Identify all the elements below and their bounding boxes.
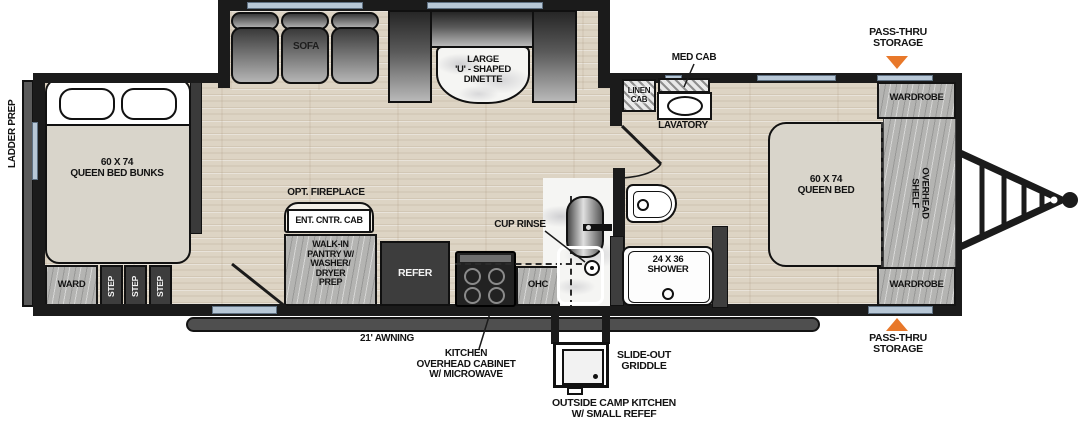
hitch-pin-hole: [1051, 197, 1058, 204]
wardrobe-bottom-label: WARDROBE: [877, 280, 956, 290]
step-label: STEP: [156, 275, 165, 296]
lavatory-sink: [667, 96, 703, 116]
sofa-label: SOFA: [287, 42, 325, 53]
shower-label: 24 X 36 SHOWER: [622, 255, 714, 275]
opt-fireplace-label: OPT. FIREPLACE: [276, 188, 376, 199]
pass-thru-top-label: PASS-THRU STORAGE: [856, 27, 940, 49]
ent-cntr-cab: ENT. CNTR. CAB: [287, 209, 371, 233]
entry-door-sill: [212, 306, 277, 314]
walk-in-pantry-label: WALK-IN PANTRY W/ WASHER/ DRYER PREP: [284, 240, 377, 288]
linen-cab-label: LINEN CAB: [628, 87, 651, 104]
pass-thru-door-bottom: [868, 306, 933, 314]
med-cab-label: MED CAB: [666, 53, 722, 64]
griddle-rail-left: [551, 312, 559, 344]
dinette-bench-right: [532, 10, 577, 103]
sofa-seat: [231, 27, 279, 84]
dinette-label: LARGE 'U' - SHAPED DINETTE: [436, 55, 530, 85]
bunk-bed-label: 60 X 74 QUEEN BED BUNKS: [52, 158, 182, 179]
cup-rinse-drain: [590, 266, 594, 270]
ent-cntr-cab-label: ENT. CNTR. CAB: [295, 216, 362, 226]
griddle-tab: [567, 387, 583, 395]
hitch-tongue: [958, 140, 1082, 260]
queen-bed-label: 60 X 74 QUEEN BED: [794, 175, 858, 196]
linen-cab: LINEN CAB: [622, 79, 656, 112]
pass-thru-door-top: [877, 75, 933, 81]
pass-thru-bottom-label: PASS-THRU STORAGE: [854, 333, 942, 355]
sofa-seat: [331, 27, 379, 84]
pass-thru-bottom-arrow: [886, 318, 908, 331]
ladder-prep-label: LADDER PREP: [5, 78, 21, 190]
refer: REFER: [380, 241, 450, 306]
cup-rinse-label: CUP RINSE: [492, 220, 548, 231]
slideout-window-1: [247, 2, 363, 9]
pillow: [59, 88, 115, 120]
step-label: STEP: [107, 275, 116, 296]
ohc-label: OHC: [516, 280, 560, 290]
awning-bar: [186, 317, 820, 332]
step-3: STEP: [149, 265, 172, 307]
step-label: STEP: [131, 275, 140, 296]
slide-out-griddle: [553, 342, 609, 388]
top-wall-left: [33, 73, 219, 83]
lavatory-counter: [657, 92, 712, 120]
dinette-bench-top: [430, 10, 534, 48]
burner: [464, 268, 481, 285]
stove-vent: [460, 255, 511, 262]
burner: [464, 287, 481, 304]
handle-knob: [586, 225, 591, 230]
pass-thru-top-arrow: [886, 56, 908, 69]
burner: [488, 287, 505, 304]
outside-kitchen-highlight: [557, 246, 604, 305]
burner: [488, 268, 505, 285]
step-2: STEP: [124, 265, 147, 307]
outside-kitchen-label: OUTSIDE CAMP KITCHEN W/ SMALL REFEF: [512, 398, 716, 420]
dinette-bench-left: [388, 10, 432, 103]
slideout-left-wall: [218, 0, 230, 88]
rear-window: [32, 122, 38, 180]
range-stove: [455, 251, 516, 307]
griddle-inner: [562, 349, 604, 385]
slide-out-griddle-label: SLIDE-OUT GRIDDLE: [612, 350, 676, 372]
shower-drain: [662, 288, 674, 300]
hitch-ball: [1062, 192, 1078, 208]
ward-label: WARD: [58, 280, 86, 290]
step-1: STEP: [100, 265, 123, 307]
overhead-shelf-label: OVERHEAD SHELF: [909, 157, 929, 230]
toilet: [626, 184, 677, 223]
slideout-window-2: [427, 2, 543, 9]
toilet-flush: [637, 199, 649, 211]
med-cab: [658, 78, 710, 93]
top-window-b: [757, 75, 836, 81]
ward-cabinet: WARD: [45, 265, 98, 306]
rv-floorplan: 60 X 74 QUEEN BED BUNKS WARD STEP STEP S…: [0, 0, 1082, 428]
left-wall: [33, 73, 45, 316]
lavatory-label: LAVATORY: [650, 121, 716, 132]
sofa-seat: [281, 27, 329, 84]
griddle-knob: [593, 374, 598, 379]
bath-wall-stub: [610, 73, 622, 126]
bunk-pillow-band: [47, 80, 189, 126]
awning-label: 21' AWNING: [348, 334, 426, 345]
pillow: [121, 88, 177, 120]
refer-label: REFER: [398, 268, 432, 279]
tank-handle: [583, 224, 612, 231]
shower-wall-right: [712, 226, 728, 308]
overhead-shelf-labelbox: OVERHEAD SHELF: [883, 118, 956, 268]
kitchen-overhead-label: KITCHEN OVERHEAD CABINET W/ MICROWAVE: [406, 349, 526, 381]
wardrobe-top-label: WARDROBE: [877, 93, 956, 103]
griddle-rail-right: [602, 312, 610, 344]
bunk-partition-wall: [190, 76, 202, 234]
cup-rinse-sink: [584, 260, 600, 276]
